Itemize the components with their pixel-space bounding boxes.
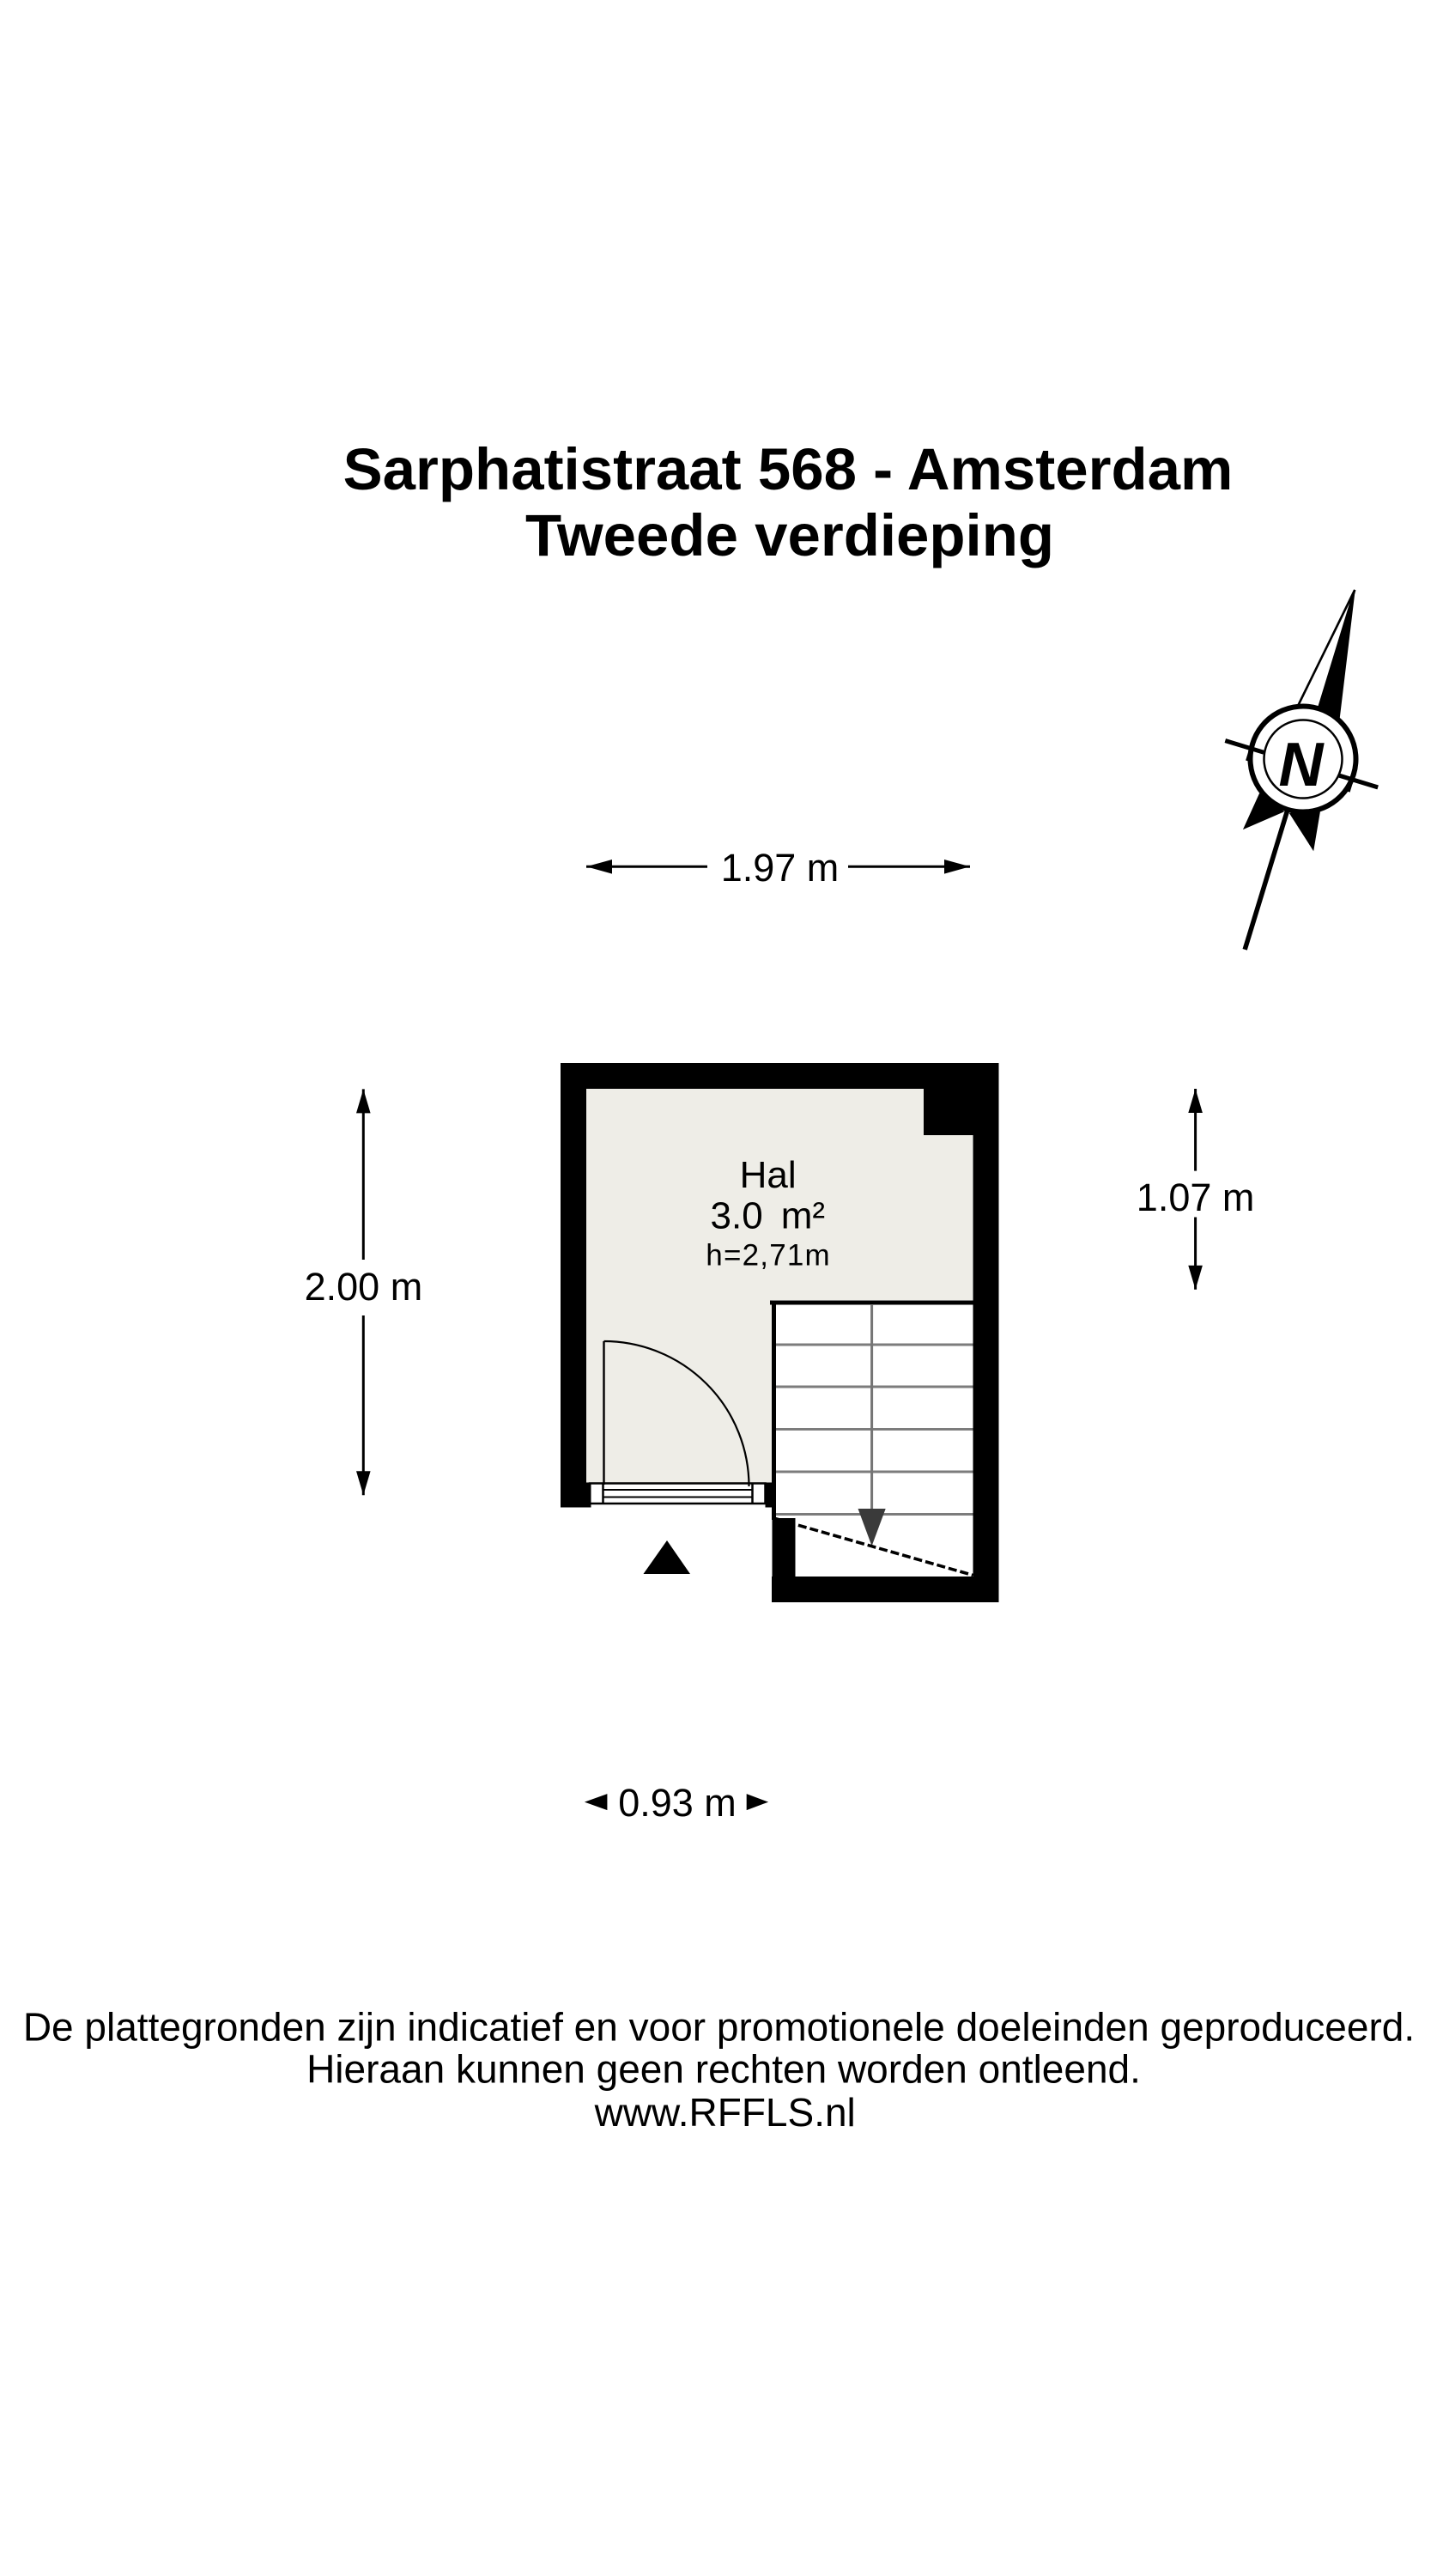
svg-text:Hieraan kunnen geen rechten wo: Hieraan kunnen geen rechten worden ontle… (306, 2047, 1141, 2092)
svg-text:1.07 m: 1.07 m (1137, 1176, 1255, 1219)
svg-text:h=2,71m: h=2,71m (706, 1239, 831, 1273)
svg-text:De plattegronden zijn indicati: De plattegronden zijn indicatief en voor… (23, 2004, 1415, 2049)
svg-text:3.0 m²: 3.0 m² (711, 1195, 826, 1237)
svg-text:2.00 m: 2.00 m (305, 1265, 423, 1309)
svg-text:Sarphatistraat 568 - Amsterdam: Sarphatistraat 568 - Amsterdam (343, 436, 1234, 502)
svg-text:www.RFFLS.nl: www.RFFLS.nl (594, 2090, 856, 2135)
svg-text:1.97 m: 1.97 m (721, 846, 840, 890)
svg-text:0.93 m: 0.93 m (618, 1781, 737, 1825)
svg-text:N: N (1279, 731, 1325, 799)
svg-text:Hal: Hal (740, 1154, 797, 1196)
svg-text:Tweede verdieping: Tweede verdieping (525, 502, 1054, 568)
